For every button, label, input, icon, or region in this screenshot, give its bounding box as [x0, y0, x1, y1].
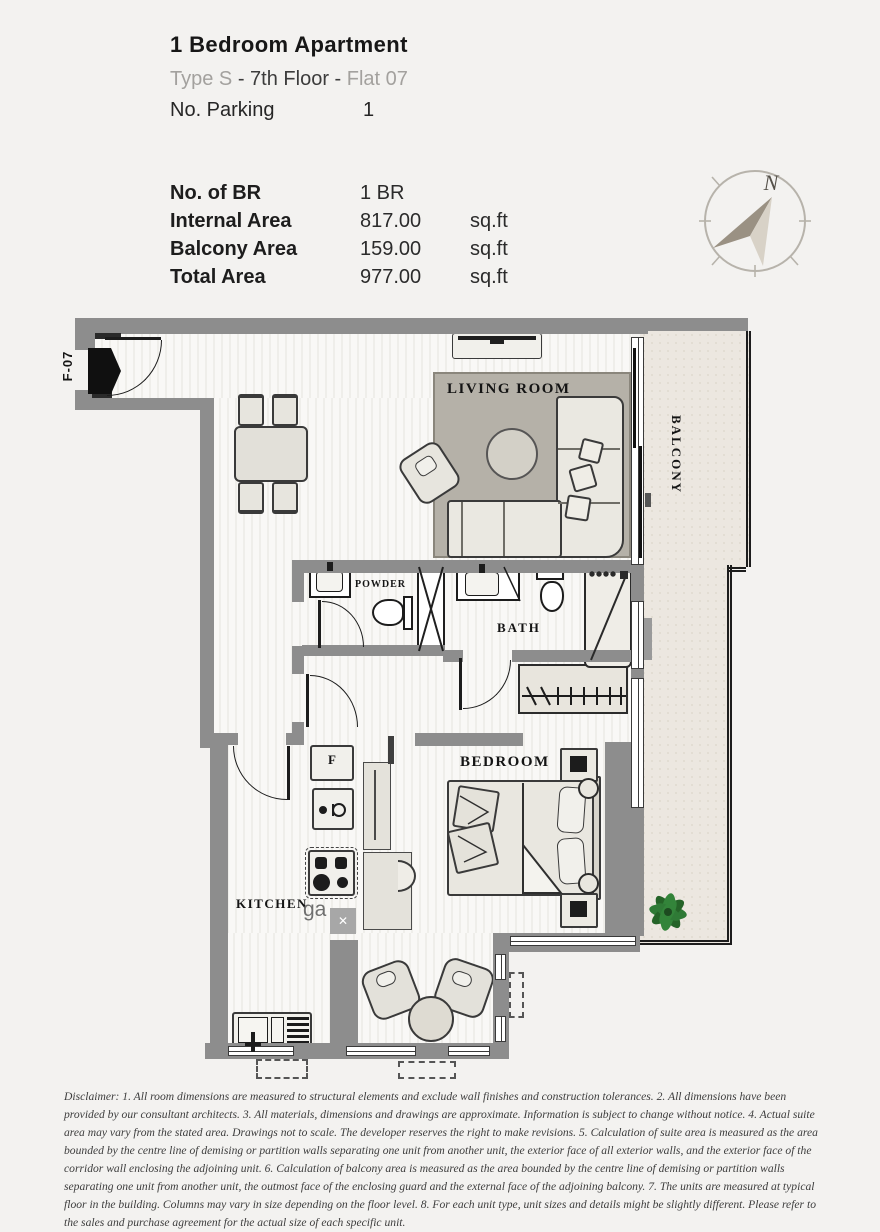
powder-label: POWDER — [355, 579, 406, 590]
spec-label: Internal Area — [170, 210, 292, 233]
parking-label: No. Parking — [170, 99, 275, 122]
spec-unit: sq.ft — [470, 266, 508, 289]
wall — [286, 733, 304, 745]
window-bottom — [228, 1046, 294, 1056]
wall — [648, 318, 748, 331]
kitchen-counter-line — [374, 770, 376, 840]
spec-row-total: Total Area 977.00 sq.ft — [170, 266, 590, 293]
spec-row-br: No. of BR 1 BR — [170, 182, 590, 209]
stove-burner — [337, 877, 348, 888]
wall — [92, 398, 214, 410]
stove-burner — [335, 857, 347, 869]
spec-label: No. of BR — [170, 182, 261, 205]
powder-toilet-tank — [403, 596, 413, 630]
closet — [518, 664, 628, 714]
sofa-armrest-line — [461, 502, 463, 556]
kitchen-label: KITCHEN — [236, 896, 308, 912]
wall — [631, 806, 644, 936]
sliding-door-panel — [633, 348, 636, 448]
balcony-upper — [640, 331, 751, 567]
bath-label: BATH — [497, 620, 541, 636]
dining-chair — [272, 482, 298, 514]
ac-unit-outline — [509, 972, 524, 1018]
hall-door-leaf — [306, 674, 309, 727]
wall — [292, 560, 304, 602]
fridge-label: F — [310, 752, 354, 768]
balcony-label: BALCONY — [668, 415, 684, 494]
wall — [300, 560, 632, 573]
wall-stub — [388, 736, 394, 764]
window-bottom — [448, 1046, 490, 1056]
sofa-cushion-line — [503, 502, 505, 556]
dining-chair — [238, 394, 264, 426]
sink-basin — [238, 1017, 268, 1043]
duct-shaft — [417, 565, 445, 653]
stove-burner — [315, 857, 327, 869]
nightstand-lamp — [570, 756, 587, 772]
compass-icon: N — [699, 164, 813, 278]
subtitle-sep1: - — [232, 68, 250, 90]
subtitle-sep2: - — [329, 68, 347, 90]
window-bedroom-balcony — [631, 678, 644, 808]
wall — [415, 733, 523, 746]
window-side — [495, 954, 506, 980]
bedside-lamp-icon — [578, 778, 599, 799]
flat-label: Flat 07 — [347, 68, 408, 90]
compass-north-label: N — [763, 170, 780, 195]
spec-row-internal: Internal Area 817.00 sq.ft — [170, 210, 590, 237]
lounge-table — [408, 996, 454, 1042]
tv-stand — [490, 340, 504, 344]
dining-table — [234, 426, 308, 482]
window-bedroom-bottom — [510, 936, 636, 946]
bedroom-label: BEDROOM — [460, 754, 550, 771]
ac-unit-outline — [398, 1061, 456, 1079]
window-bottom — [346, 1046, 416, 1056]
spec-value: 1 BR — [360, 182, 404, 205]
spec-value: 977.00 — [360, 266, 421, 289]
ac-unit-outline — [256, 1059, 308, 1079]
wall — [631, 565, 644, 603]
bath-toilet-bowl — [540, 581, 564, 612]
spec-label: Balcony Area — [170, 238, 297, 261]
sofa-pillow — [564, 494, 591, 521]
wall — [605, 742, 632, 938]
wall — [210, 733, 238, 745]
spec-value: 817.00 — [360, 210, 421, 233]
bedside-lamp-icon — [578, 873, 599, 894]
floor-drain-icon: ✕ — [330, 908, 356, 934]
wall — [200, 398, 214, 748]
balcony-ledge — [644, 618, 652, 660]
spec-unit: sq.ft — [470, 238, 508, 261]
powder-sink-basin — [316, 571, 343, 592]
kitchen-counter — [363, 762, 391, 850]
powder-door-leaf — [318, 600, 321, 648]
parking-value: 1 — [363, 99, 374, 122]
wall — [75, 318, 95, 350]
wall — [330, 940, 358, 1044]
stove-burner — [313, 874, 330, 891]
powder-toilet-bowl — [372, 599, 404, 626]
spec-label: Total Area — [170, 266, 266, 289]
nightstand-lamp — [570, 901, 587, 917]
type-label: Type S — [170, 68, 232, 90]
door-jamb — [645, 493, 651, 507]
balcony-lower — [640, 565, 732, 945]
page-title: 1 Bedroom Apartment — [170, 32, 408, 58]
sink-basin-small — [271, 1017, 284, 1043]
wall — [210, 742, 228, 1048]
sink-drainboard — [287, 1017, 309, 1043]
spec-row-balcony: Balcony Area 159.00 sq.ft — [170, 238, 590, 265]
sofa-seat — [447, 500, 562, 558]
spec-value: 159.00 — [360, 238, 421, 261]
spec-unit: sq.ft — [470, 210, 508, 233]
wall — [508, 946, 640, 952]
bath-sink-basin — [465, 572, 499, 596]
watermark-text: ga — [303, 898, 326, 922]
balcony-step-edge — [727, 560, 746, 572]
wall — [512, 650, 632, 662]
kitchen-door-leaf — [287, 746, 290, 800]
dining-chair — [238, 482, 264, 514]
floor-label: 7th Floor — [250, 68, 329, 90]
kitchen-sink-unit — [312, 788, 354, 830]
living-room-label: LIVING ROOM — [447, 381, 571, 398]
unit-subtitle: Type S - 7th Floor - Flat 07 — [170, 68, 408, 91]
window-bath — [631, 601, 644, 669]
dining-chair — [272, 394, 298, 426]
disclaimer-text: Disclaimer: 1. All room dimensions are m… — [64, 1088, 822, 1232]
wall — [75, 318, 648, 334]
coffee-table — [486, 428, 538, 480]
sliding-door-panel — [639, 446, 642, 558]
bath-door-leaf — [459, 658, 462, 710]
unit-number-label: F-07 — [60, 336, 76, 396]
window-side — [495, 1016, 506, 1042]
